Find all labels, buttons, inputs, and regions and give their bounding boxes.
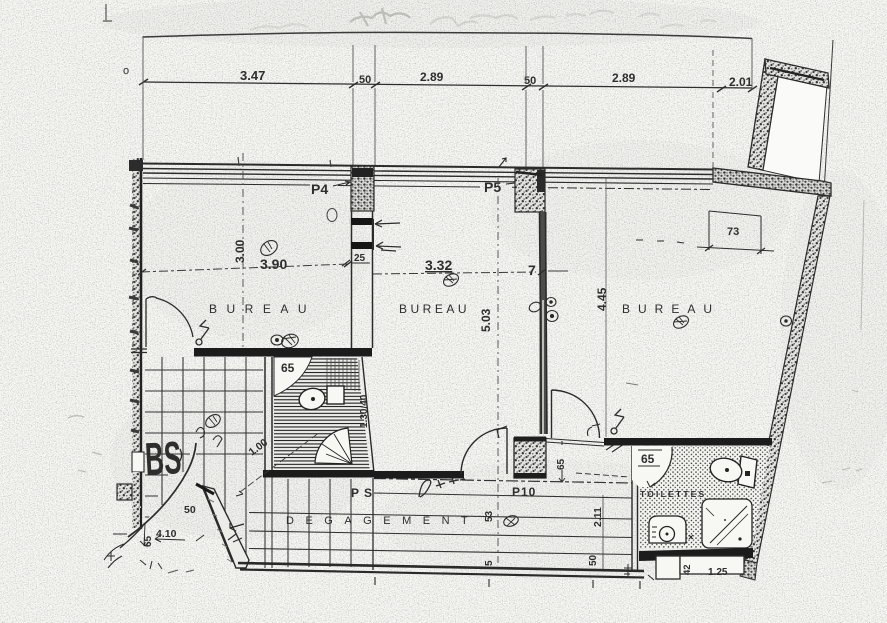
svg-text:BS: BS [144, 431, 183, 485]
svg-text:5: 5 [484, 560, 495, 566]
svg-text:3.47: 3.47 [240, 68, 265, 83]
svg-text:3.32: 3.32 [425, 257, 452, 273]
svg-text:50: 50 [184, 504, 196, 516]
svg-text:4.45: 4.45 [595, 287, 609, 311]
svg-text:50: 50 [359, 74, 371, 86]
svg-text:65: 65 [641, 452, 655, 466]
svg-text:PS: PS [351, 486, 377, 500]
svg-text:65: 65 [556, 458, 567, 470]
svg-text:BUREAU: BUREAU [399, 302, 470, 316]
svg-text:P10: P10 [512, 485, 536, 499]
svg-text:1.25: 1.25 [708, 567, 728, 578]
svg-text:TOILETTES: TOILETTES [640, 489, 706, 499]
svg-text:P5: P5 [484, 179, 501, 195]
svg-text:2.11: 2.11 [592, 507, 604, 527]
svg-text:3.90: 3.90 [260, 256, 287, 272]
svg-text:73: 73 [727, 226, 739, 238]
svg-text:5.03: 5.03 [479, 308, 493, 332]
svg-text:BUREAU: BUREAU [622, 302, 720, 316]
svg-text:2.89: 2.89 [612, 71, 636, 85]
svg-text:65: 65 [281, 361, 295, 375]
svg-text:3.00: 3.00 [233, 239, 247, 263]
svg-text:o: o [123, 65, 129, 77]
svg-text:DEGAGEMENT: DEGAGEMENT [286, 515, 479, 527]
svg-text:7: 7 [528, 262, 536, 278]
svg-text:1.30/40: 1.30/40 [359, 394, 370, 428]
svg-text:4.10: 4.10 [156, 528, 177, 540]
svg-text:2.89: 2.89 [420, 70, 444, 84]
svg-text:BUREAU: BUREAU [209, 302, 316, 316]
svg-text:25: 25 [354, 253, 366, 264]
svg-text:2.01: 2.01 [729, 75, 753, 89]
svg-text:53: 53 [484, 510, 495, 522]
svg-text:50: 50 [588, 554, 599, 566]
svg-text:P4: P4 [311, 181, 328, 197]
svg-text:42: 42 [682, 564, 693, 575]
